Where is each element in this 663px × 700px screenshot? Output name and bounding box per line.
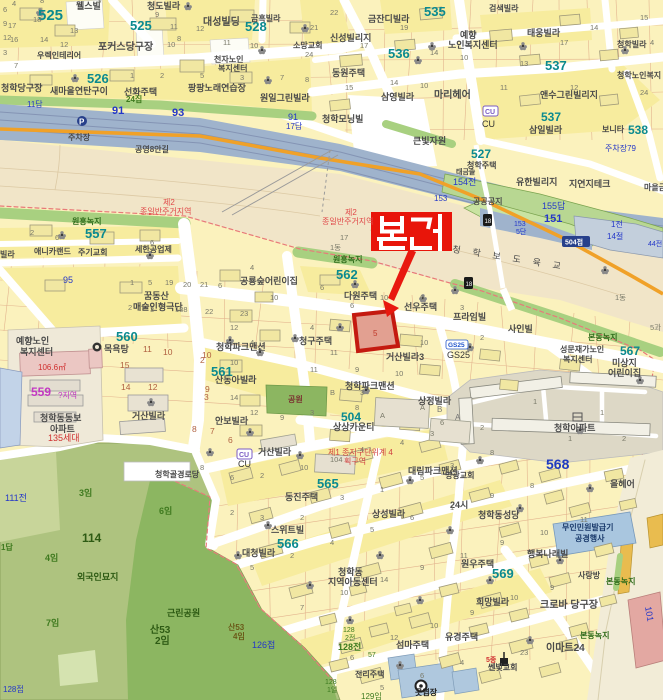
- svg-text:9: 9: [550, 583, 554, 592]
- svg-text:주기교회: 주기교회: [78, 247, 107, 257]
- svg-text:보니타: 보니타: [602, 124, 625, 134]
- svg-text:3: 3: [450, 461, 454, 470]
- svg-text:12: 12: [570, 83, 578, 92]
- svg-text:3: 3: [460, 303, 464, 312]
- svg-text:11답: 11답: [27, 99, 43, 109]
- svg-text:1: 1: [533, 397, 537, 406]
- svg-text:천자노인: 천자노인: [214, 54, 243, 64]
- svg-text:5: 5: [250, 563, 254, 572]
- svg-text:4: 4: [12, 0, 16, 8]
- svg-text:10: 10: [230, 358, 238, 367]
- svg-text:원흥녹지: 원흥녹지: [333, 254, 362, 264]
- svg-text:559: 559: [31, 385, 51, 399]
- svg-text:21: 21: [200, 280, 208, 289]
- svg-text:5종: 5종: [486, 656, 497, 664]
- svg-text:주차장79: 주차장79: [605, 143, 637, 153]
- svg-text:1일: 1일: [327, 685, 337, 694]
- svg-text:15: 15: [640, 13, 648, 22]
- svg-text:23: 23: [520, 648, 528, 657]
- svg-text:14: 14: [390, 78, 398, 87]
- svg-text:91: 91: [288, 112, 298, 122]
- svg-text:14절: 14절: [607, 232, 623, 241]
- svg-text:14: 14: [430, 48, 438, 57]
- svg-text:우렉인테리어: 우렉인테리어: [37, 50, 81, 60]
- svg-text:동진주택: 동진주택: [285, 491, 318, 502]
- svg-text:128: 128: [325, 679, 337, 686]
- svg-text:535: 535: [424, 4, 446, 19]
- svg-text:155답: 155답: [542, 200, 565, 211]
- svg-text:8: 8: [305, 75, 309, 84]
- svg-text:미상지: 미상지: [612, 357, 637, 368]
- svg-text:프라임빌: 프라임빌: [453, 311, 486, 322]
- svg-text:6: 6: [230, 473, 234, 482]
- svg-text:원일그린빌라: 원일그린빌라: [260, 92, 310, 103]
- svg-text:19: 19: [400, 23, 408, 32]
- svg-text:11: 11: [170, 22, 178, 31]
- svg-text:제2: 제2: [345, 208, 357, 217]
- svg-text:153: 153: [434, 194, 448, 203]
- svg-text:2임: 2임: [155, 634, 170, 647]
- svg-text:8: 8: [530, 481, 534, 490]
- svg-text:목욕탕: 목욕탕: [104, 344, 130, 354]
- svg-text:청학빌라: 청학빌라: [617, 39, 647, 49]
- svg-text:종일반주거지역: 종일반주거지역: [322, 216, 374, 226]
- svg-text:4임: 4임: [45, 552, 58, 563]
- svg-text:검색빌라: 검색빌라: [489, 3, 519, 13]
- svg-text:10: 10: [430, 621, 438, 630]
- svg-text:93: 93: [172, 107, 184, 119]
- svg-text:3임: 3임: [79, 487, 92, 498]
- svg-text:?지역: ?지역: [58, 390, 77, 400]
- svg-text:151: 151: [544, 213, 562, 225]
- svg-text:5: 5: [370, 525, 374, 534]
- svg-text:7: 7: [14, 61, 18, 70]
- svg-text:거산빌라: 거산빌라: [258, 446, 292, 457]
- svg-text:14: 14: [121, 382, 131, 392]
- svg-text:섬마주택: 섬마주택: [396, 639, 429, 650]
- svg-text:17: 17: [360, 41, 368, 50]
- svg-text:20: 20: [183, 280, 191, 289]
- svg-text:557: 557: [85, 226, 107, 241]
- svg-text:24: 24: [305, 50, 313, 59]
- svg-text:504접: 504접: [565, 238, 583, 247]
- svg-text:8: 8: [490, 448, 494, 457]
- svg-text:12: 12: [230, 323, 238, 332]
- svg-text:11: 11: [580, 515, 588, 524]
- svg-text:팡팡노래연습장: 팡팡노래연습장: [188, 82, 247, 93]
- svg-text:본동녹지: 본동녹지: [580, 630, 609, 640]
- svg-text:전리주택: 전리주택: [355, 669, 384, 679]
- svg-text:11: 11: [330, 348, 338, 357]
- svg-text:568: 568: [546, 456, 570, 472]
- svg-text:2: 2: [230, 508, 234, 517]
- svg-text:상성빌라: 상성빌라: [372, 508, 406, 519]
- svg-text:상상카운티: 상상카운티: [333, 421, 374, 432]
- svg-text:9: 9: [3, 19, 7, 28]
- svg-text:삼영빌라: 삼영빌라: [381, 91, 415, 102]
- svg-text:6: 6: [150, 238, 154, 247]
- svg-text:복지센터: 복지센터: [218, 63, 247, 73]
- svg-text:안보빌라: 안보빌라: [215, 415, 249, 426]
- svg-text:이마트24: 이마트24: [546, 641, 585, 654]
- svg-text:명광교회: 명광교회: [445, 470, 474, 480]
- svg-text:2: 2: [30, 228, 34, 237]
- svg-text:525: 525: [130, 18, 152, 33]
- svg-text:106.6㎡: 106.6㎡: [38, 363, 66, 372]
- svg-text:10: 10: [460, 53, 468, 62]
- svg-text:7: 7: [210, 426, 215, 436]
- svg-text:2: 2: [300, 513, 304, 522]
- svg-text:18: 18: [466, 282, 473, 288]
- svg-text:12: 12: [148, 382, 158, 392]
- svg-text:12: 12: [196, 24, 204, 33]
- svg-text:공경행사: 공경행사: [575, 533, 605, 543]
- svg-text:17: 17: [560, 38, 568, 47]
- svg-text:1: 1: [130, 278, 134, 287]
- svg-text:10: 10: [163, 347, 173, 357]
- svg-text:청학동성당: 청학동성당: [478, 509, 520, 520]
- svg-text:9: 9: [155, 10, 159, 19]
- svg-text:청학파크맨션: 청학파크맨션: [216, 341, 266, 352]
- svg-text:12: 12: [390, 633, 398, 642]
- svg-text:복지센터: 복지센터: [563, 354, 592, 364]
- svg-text:공룡숲어린이집: 공룡숲어린이집: [240, 275, 298, 286]
- svg-text:8: 8: [40, 0, 44, 5]
- svg-text:567: 567: [620, 344, 640, 358]
- svg-text:3: 3: [150, 305, 154, 314]
- svg-text:마을금: 마을금: [644, 182, 663, 192]
- svg-text:거산빌라: 거산빌라: [132, 410, 166, 421]
- svg-text:538: 538: [628, 123, 648, 137]
- svg-text:4: 4: [250, 338, 254, 347]
- svg-text:111전: 111전: [5, 493, 27, 503]
- svg-text:4: 4: [310, 323, 314, 332]
- svg-text:대성빌딩: 대성빌딩: [203, 15, 240, 28]
- svg-text:3: 3: [240, 73, 244, 82]
- svg-text:4: 4: [360, 445, 364, 454]
- svg-text:소망교회: 소망교회: [293, 40, 322, 50]
- svg-text:유한빌리지: 유한빌리지: [516, 176, 557, 187]
- svg-text:청학동동보: 청학동동보: [40, 412, 82, 423]
- svg-text:10: 10: [395, 369, 403, 378]
- svg-text:22: 22: [330, 8, 338, 17]
- svg-text:청학당구장: 청학당구장: [1, 82, 43, 93]
- svg-text:1동: 1동: [330, 243, 341, 252]
- svg-text:2: 2: [480, 423, 484, 432]
- svg-text:선우주택: 선우주택: [404, 301, 437, 312]
- svg-text:희망빌라: 희망빌라: [476, 596, 510, 607]
- svg-text:21: 21: [310, 23, 318, 32]
- svg-text:CU: CU: [238, 459, 251, 469]
- svg-text:14: 14: [380, 575, 388, 584]
- svg-text:11: 11: [143, 344, 152, 354]
- svg-text:17답: 17답: [286, 121, 303, 131]
- svg-text:13: 13: [70, 26, 78, 35]
- svg-text:A: A: [420, 403, 425, 412]
- svg-text:10: 10: [250, 41, 258, 50]
- svg-text:560: 560: [116, 329, 138, 344]
- svg-text:14: 14: [590, 23, 598, 32]
- svg-text:10: 10: [420, 338, 428, 347]
- svg-text:1: 1: [568, 434, 572, 443]
- svg-text:8: 8: [177, 34, 181, 43]
- svg-text:6임: 6임: [159, 505, 172, 516]
- svg-text:종일반주거지역: 종일반주거지역: [140, 206, 192, 216]
- svg-text:3: 3: [3, 48, 7, 57]
- svg-text:10: 10: [300, 463, 308, 472]
- svg-text:공영8안길: 공영8안길: [135, 144, 169, 154]
- svg-text:꿈동산: 꿈동산: [144, 290, 170, 301]
- svg-text:126접: 126접: [252, 639, 275, 650]
- svg-text:4: 4: [330, 538, 334, 547]
- svg-text:14: 14: [40, 35, 48, 44]
- svg-text:6: 6: [350, 301, 354, 310]
- svg-text:536: 536: [388, 46, 410, 61]
- svg-text:9: 9: [500, 538, 504, 547]
- svg-text:B: B: [330, 388, 335, 397]
- svg-text:본동녹지: 본동녹지: [606, 576, 635, 586]
- svg-text:노인복지센터: 노인복지센터: [448, 39, 498, 50]
- svg-text:4: 4: [400, 438, 404, 447]
- svg-text:지역아동센터: 지역아동센터: [328, 576, 378, 587]
- svg-text:11: 11: [310, 365, 318, 374]
- svg-text:5: 5: [148, 278, 152, 287]
- svg-text:13: 13: [520, 59, 528, 68]
- svg-text:15: 15: [120, 360, 130, 370]
- svg-text:8: 8: [192, 424, 197, 434]
- svg-text:청학아파트: 청학아파트: [554, 422, 596, 433]
- svg-text:6: 6: [420, 293, 424, 302]
- svg-text:GS25: GS25: [448, 342, 465, 349]
- svg-text:44전: 44전: [648, 239, 662, 248]
- svg-text:아파트: 아파트: [50, 423, 76, 434]
- svg-text:6: 6: [320, 283, 324, 292]
- svg-text:청학모닝빌: 청학모닝빌: [322, 113, 363, 124]
- svg-text:565: 565: [317, 476, 339, 491]
- svg-text:스위트빌: 스위트빌: [271, 524, 304, 535]
- svg-text:성문재가노인: 성문재가노인: [560, 344, 604, 354]
- svg-text:청학노인복지: 청학노인복지: [617, 70, 661, 80]
- svg-text:청학골경로당: 청학골경로당: [155, 469, 200, 479]
- svg-text:6: 6: [218, 281, 222, 290]
- svg-text:사인빌: 사인빌: [508, 323, 533, 334]
- svg-text:5과: 5과: [650, 323, 661, 332]
- svg-text:CU: CU: [239, 452, 249, 459]
- svg-text:마리헤어: 마리헤어: [434, 88, 471, 101]
- svg-text:11: 11: [223, 38, 231, 47]
- svg-text:지연지테크: 지연지테크: [569, 178, 610, 189]
- svg-text:10: 10: [380, 293, 388, 302]
- svg-text:18: 18: [485, 219, 492, 225]
- svg-text:1: 1: [600, 408, 604, 417]
- svg-text:17: 17: [340, 233, 348, 242]
- svg-text:128전: 128전: [338, 641, 361, 652]
- svg-text:빌라: 빌라: [0, 249, 15, 259]
- svg-text:6: 6: [55, 233, 59, 242]
- svg-text:P: P: [79, 118, 85, 127]
- svg-text:128접: 128접: [3, 684, 24, 694]
- svg-text:3: 3: [310, 408, 314, 417]
- svg-text:외국인묘지: 외국인묘지: [77, 571, 118, 582]
- svg-text:15: 15: [245, 373, 253, 382]
- svg-text:주차장: 주차장: [68, 132, 91, 142]
- svg-text:포커스당구장: 포커스당구장: [98, 40, 154, 53]
- svg-text:3: 3: [430, 429, 434, 438]
- svg-text:1답: 1답: [1, 542, 13, 552]
- svg-text:다원주택: 다원주택: [344, 290, 377, 301]
- svg-text:A: A: [455, 413, 461, 422]
- svg-text:10: 10: [540, 528, 548, 537]
- svg-text:7임: 7임: [46, 617, 59, 628]
- svg-text:4: 4: [460, 658, 464, 667]
- svg-text:1동: 1동: [615, 293, 626, 302]
- svg-text:537: 537: [541, 110, 561, 124]
- svg-text:올헤어: 올헤어: [610, 478, 635, 489]
- svg-text:4: 4: [250, 263, 254, 272]
- svg-text:569: 569: [492, 566, 514, 581]
- svg-text:95: 95: [63, 275, 73, 285]
- svg-text:CU: CU: [485, 109, 495, 116]
- svg-text:14: 14: [230, 393, 238, 402]
- svg-text:3: 3: [204, 392, 209, 402]
- svg-text:12: 12: [60, 40, 68, 49]
- svg-text:유경주택: 유경주택: [445, 631, 478, 642]
- svg-text:16: 16: [10, 35, 18, 44]
- svg-text:새마을연탄구이: 새마을연탄구이: [50, 85, 108, 96]
- svg-text:1전: 1전: [611, 219, 623, 229]
- svg-text:5: 5: [373, 329, 378, 338]
- svg-text:2: 2: [260, 471, 264, 480]
- svg-text:91: 91: [112, 105, 124, 117]
- svg-text:2: 2: [480, 333, 484, 342]
- svg-text:3: 3: [260, 513, 264, 522]
- svg-text:대청빌라: 대청빌라: [242, 547, 276, 558]
- svg-text:청구주택: 청구주택: [299, 335, 332, 346]
- svg-text:3: 3: [360, 388, 364, 397]
- svg-text:9: 9: [470, 608, 474, 617]
- svg-text:3: 3: [340, 493, 344, 502]
- svg-text:9: 9: [280, 413, 284, 422]
- svg-text:4임: 4임: [233, 631, 245, 641]
- svg-text:1: 1: [130, 71, 134, 80]
- svg-text:7: 7: [280, 73, 284, 82]
- svg-text:태웅빌라: 태웅빌라: [527, 27, 561, 38]
- svg-text:3: 3: [97, 0, 101, 5]
- svg-text:4: 4: [650, 38, 654, 47]
- svg-text:예향노인: 예향노인: [16, 335, 49, 346]
- svg-text:본동녹지: 본동녹지: [588, 332, 617, 342]
- svg-text:행복나래빌: 행복나래빌: [527, 548, 568, 559]
- svg-text:산53: 산53: [150, 623, 171, 636]
- svg-text:B: B: [437, 405, 442, 414]
- svg-text:525: 525: [38, 7, 63, 24]
- svg-text:청학파크맨션: 청학파크맨션: [345, 380, 395, 391]
- svg-text:10: 10: [270, 293, 278, 302]
- svg-text:5: 5: [380, 683, 384, 692]
- svg-text:A: A: [380, 411, 385, 420]
- svg-text:복지센터: 복지센터: [20, 346, 53, 357]
- svg-text:청도빌라: 청도빌라: [147, 0, 181, 11]
- svg-text:5단: 5단: [516, 227, 527, 236]
- svg-text:태금솔: 태금솔: [456, 167, 476, 176]
- svg-text:154전: 154전: [453, 177, 476, 187]
- svg-text:제2: 제2: [163, 198, 175, 207]
- svg-text:12: 12: [250, 408, 258, 417]
- svg-text:57: 57: [368, 652, 376, 659]
- svg-text:CU: CU: [482, 119, 495, 129]
- svg-text:10: 10: [340, 588, 348, 597]
- svg-text:15: 15: [345, 83, 353, 92]
- svg-text:크로바 당구장: 크로바 당구장: [540, 598, 599, 611]
- svg-text:2: 2: [128, 303, 132, 312]
- svg-text:9: 9: [420, 563, 424, 572]
- svg-text:큰빛자원: 큰빛자원: [413, 135, 446, 146]
- svg-text:금흑빌라: 금흑빌라: [251, 13, 281, 23]
- svg-text:산53: 산53: [228, 622, 245, 632]
- svg-text:사랑방: 사랑방: [578, 570, 601, 580]
- svg-text:23: 23: [240, 309, 248, 318]
- svg-text:공공공지: 공공공지: [473, 196, 502, 206]
- svg-text:24집: 24집: [126, 94, 142, 104]
- svg-text:5: 5: [420, 473, 424, 482]
- svg-text:8: 8: [200, 463, 204, 472]
- svg-text:8: 8: [355, 403, 359, 412]
- svg-text:135세대: 135세대: [48, 433, 80, 443]
- svg-text:10: 10: [420, 81, 428, 90]
- svg-text:어린이집: 어린이집: [608, 367, 641, 378]
- svg-text:22: 22: [205, 307, 213, 316]
- svg-text:11: 11: [500, 83, 508, 92]
- svg-text:6: 6: [350, 653, 354, 662]
- svg-text:청학동: 청학동: [338, 566, 363, 577]
- svg-text:537: 537: [545, 58, 567, 73]
- svg-text:10: 10: [167, 40, 175, 49]
- svg-text:526: 526: [87, 71, 109, 86]
- svg-text:128: 128: [343, 627, 355, 634]
- svg-text:2전: 2전: [345, 633, 355, 642]
- svg-text:1: 1: [450, 503, 454, 512]
- svg-text:2: 2: [160, 71, 164, 80]
- svg-text:원흥녹지: 원흥녹지: [72, 216, 101, 226]
- svg-text:앤수그린빌리지: 앤수그린빌리지: [540, 89, 598, 100]
- svg-text:9: 9: [355, 365, 359, 374]
- svg-text:동원주택: 동원주택: [332, 67, 365, 78]
- svg-text:6: 6: [3, 5, 7, 14]
- svg-text:삼일빌라: 삼일빌라: [529, 124, 563, 135]
- svg-text:5: 5: [200, 71, 204, 80]
- svg-text:10: 10: [510, 593, 518, 602]
- svg-text:6: 6: [228, 435, 233, 445]
- svg-text:104: 104: [330, 455, 343, 464]
- svg-text:근린공원: 근린공원: [167, 607, 200, 618]
- svg-text:6: 6: [440, 418, 444, 427]
- svg-text:153: 153: [514, 221, 526, 228]
- svg-text:공원: 공원: [288, 394, 303, 404]
- svg-text:1: 1: [380, 485, 384, 494]
- svg-text:곳염장: 곳염장: [415, 687, 438, 697]
- svg-text:획구역: 획구역: [344, 456, 366, 466]
- svg-text:2: 2: [622, 434, 626, 443]
- svg-text:114: 114: [82, 531, 102, 545]
- svg-text:188: 188: [175, 305, 188, 314]
- svg-text:129임: 129임: [361, 692, 382, 700]
- svg-text:2: 2: [200, 355, 205, 365]
- svg-text:566: 566: [277, 536, 299, 551]
- svg-text:11: 11: [460, 551, 468, 560]
- svg-text:9: 9: [490, 491, 494, 500]
- svg-text:527: 527: [471, 147, 491, 161]
- svg-text:24: 24: [640, 88, 648, 97]
